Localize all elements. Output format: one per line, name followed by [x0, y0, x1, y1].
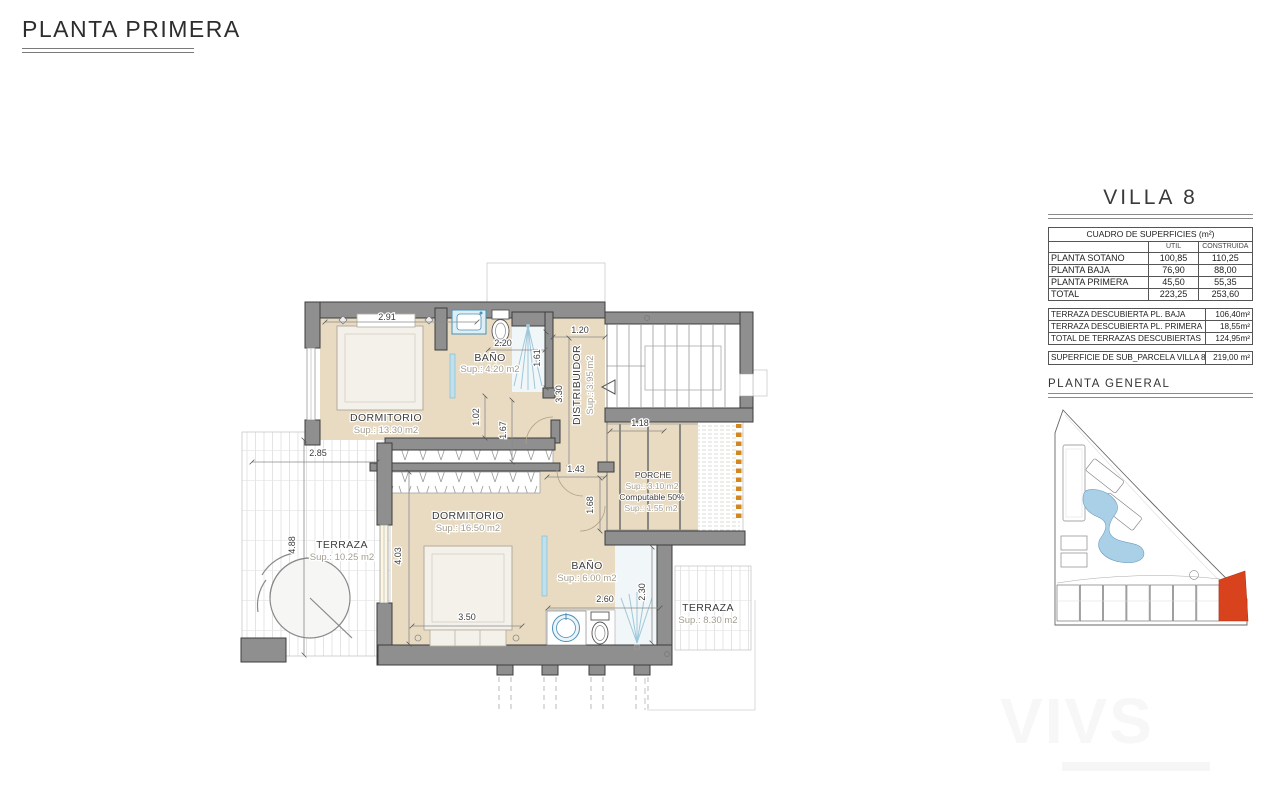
surfaces-row-label: PLANTA SOTANO	[1049, 253, 1149, 265]
site-villa-row	[1057, 585, 1219, 621]
surfaces-row-construida: 253,60	[1198, 289, 1252, 301]
projection-dashes	[499, 677, 648, 710]
room-sup-dormitorio-1: Sup.: 13.30 m2	[354, 425, 418, 436]
surfaces-col-construida: CONSTRUIDA	[1198, 242, 1252, 253]
bed-dorm2	[415, 546, 519, 646]
surfaces-row-util: 45,50	[1149, 277, 1198, 289]
room-sup2-porche: Sup.: 1.55 m2	[625, 503, 678, 513]
surfaces-row-util: 100,85	[1149, 253, 1198, 265]
room-note-porche: Computable 50%	[619, 492, 685, 502]
surfaces-row-construida: 110,25	[1198, 253, 1252, 265]
site-plan-map	[1048, 403, 1253, 631]
terrace-row-value: 18,55m²	[1205, 321, 1252, 333]
watermark-tagline-bar	[1062, 762, 1210, 771]
surfaces-col-util: UTIL	[1149, 242, 1198, 253]
surfaces-table-header: CUADRO DE SUPERFICIES (m²)	[1049, 228, 1253, 242]
site-plan-title: PLANTA GENERAL	[1048, 378, 1253, 390]
table-row: PLANTA PRIMERA 45,50 55,35	[1049, 277, 1253, 289]
table-row: TERRAZA DESCUBIERTA PL. BAJA 106,40m²	[1049, 309, 1253, 321]
terraces-table: TERRAZA DESCUBIERTA PL. BAJA 106,40m² TE…	[1048, 308, 1253, 345]
villa-title-underline	[1048, 214, 1253, 219]
dim-label: 1.61	[532, 349, 542, 367]
dim-label: 3.50	[458, 612, 476, 622]
room-sup-bano-2: Sup.: 6.00 m2	[557, 573, 616, 584]
terrace-row-value: 124,95m²	[1205, 333, 1252, 345]
dim-label: 4.03	[393, 547, 403, 565]
villa-title: VILLA 8	[1048, 186, 1253, 210]
dim-label: 2.30	[637, 583, 647, 601]
room-label-dormitorio-2: DORMITORIO	[432, 510, 504, 522]
surfaces-row-label: PLANTA PRIMERA	[1049, 277, 1149, 289]
table-row: SUPERFICIE DE SUB_PARCELA VILLA 8 219,00…	[1049, 352, 1253, 365]
room-label-bano-2: BAÑO	[571, 559, 602, 572]
dim-label: 4.88	[287, 536, 297, 554]
room-sup-bano-1: Sup.: 4.20 m2	[460, 364, 519, 375]
room-label-terraza-right: TERRAZA	[682, 602, 734, 614]
surfaces-row-label: TOTAL	[1049, 289, 1149, 301]
table-row: TERRAZA DESCUBIERTA PL. PRIMERA 18,55m²	[1049, 321, 1253, 333]
dim-label: 3.30	[554, 385, 564, 403]
site-villa8-highlight	[1219, 571, 1248, 621]
room-sup-porche: Sup.: 3.10 m2	[626, 481, 679, 491]
room-label-distribuidor: DISTRIBUIDOR	[571, 345, 583, 425]
dim-label: 1.68	[585, 496, 595, 514]
dim-label: 1.43	[567, 464, 585, 474]
drawing-sheet: PLANTA PRIMERA	[0, 0, 1280, 800]
table-row: TOTAL DE TERRAZAS DESCUBIERTAS 124,95m²	[1049, 333, 1253, 345]
parcel-table: SUPERFICIE DE SUB_PARCELA VILLA 8 219,00…	[1048, 351, 1253, 365]
dim-label: 1.02	[471, 408, 481, 426]
surfaces-row-util: 76,90	[1149, 265, 1198, 277]
surfaces-row-label: PLANTA BAJA	[1049, 265, 1149, 277]
site-plan-title-underline	[1048, 393, 1253, 398]
terrace-row-label: TERRAZA DESCUBIERTA PL. PRIMERA	[1049, 321, 1206, 333]
surfaces-row-util: 223,25	[1149, 289, 1198, 301]
surfaces-table: CUADRO DE SUPERFICIES (m²) UTIL CONSTRUI…	[1048, 227, 1253, 301]
table-row: TOTAL 223,25 253,60	[1049, 289, 1253, 301]
villa-panel: VILLA 8 CUADRO DE SUPERFICIES (m²) UTIL …	[1048, 186, 1253, 636]
table-row: PLANTA BAJA 76,90 88,00	[1049, 265, 1253, 277]
watermark-logo: VIVS	[1000, 684, 1154, 758]
room-sup-terraza-left: Sup.: 10.25 m2	[310, 552, 374, 563]
surfaces-row-construida: 88,00	[1198, 265, 1252, 277]
room-sup-distribuidor: Sup.: 3.95 m2	[585, 355, 596, 414]
parcel-row-label: SUPERFICIE DE SUB_PARCELA VILLA 8	[1049, 352, 1206, 365]
parcel-row-value: 219,00 m²	[1205, 352, 1252, 365]
terrace-row-label: TERRAZA DESCUBIERTA PL. BAJA	[1049, 309, 1206, 321]
dim-label: 1.67	[498, 421, 508, 439]
surfaces-col-empty	[1049, 242, 1149, 253]
dim-label: 2.60	[596, 594, 614, 604]
room-label-bano-1: BAÑO	[474, 351, 505, 364]
bed-dorm1	[337, 314, 433, 410]
dim-label: 2.91	[378, 312, 396, 322]
dim-label: 2.20	[494, 338, 512, 348]
dim-label: 1.20	[571, 325, 589, 335]
terrace-row-value: 106,40m²	[1205, 309, 1252, 321]
room-sup-terraza-right: Sup.: 8.30 m2	[678, 615, 737, 626]
dim-label: 2.85	[309, 448, 327, 458]
room-label-porche: PORCHE	[635, 470, 672, 480]
terrace-row-label: TOTAL DE TERRAZAS DESCUBIERTAS	[1049, 333, 1206, 345]
dim-label: 1.18	[631, 418, 649, 428]
table-row: PLANTA SOTANO 100,85 110,25	[1049, 253, 1253, 265]
room-sup-dormitorio-2: Sup.: 16.50 m2	[436, 523, 500, 534]
surfaces-row-construida: 55,35	[1198, 277, 1252, 289]
room-label-dormitorio-1: DORMITORIO	[350, 412, 422, 424]
room-label-terraza-left: TERRAZA	[316, 539, 368, 551]
surfaces-columns-row: UTIL CONSTRUIDA	[1049, 242, 1253, 253]
